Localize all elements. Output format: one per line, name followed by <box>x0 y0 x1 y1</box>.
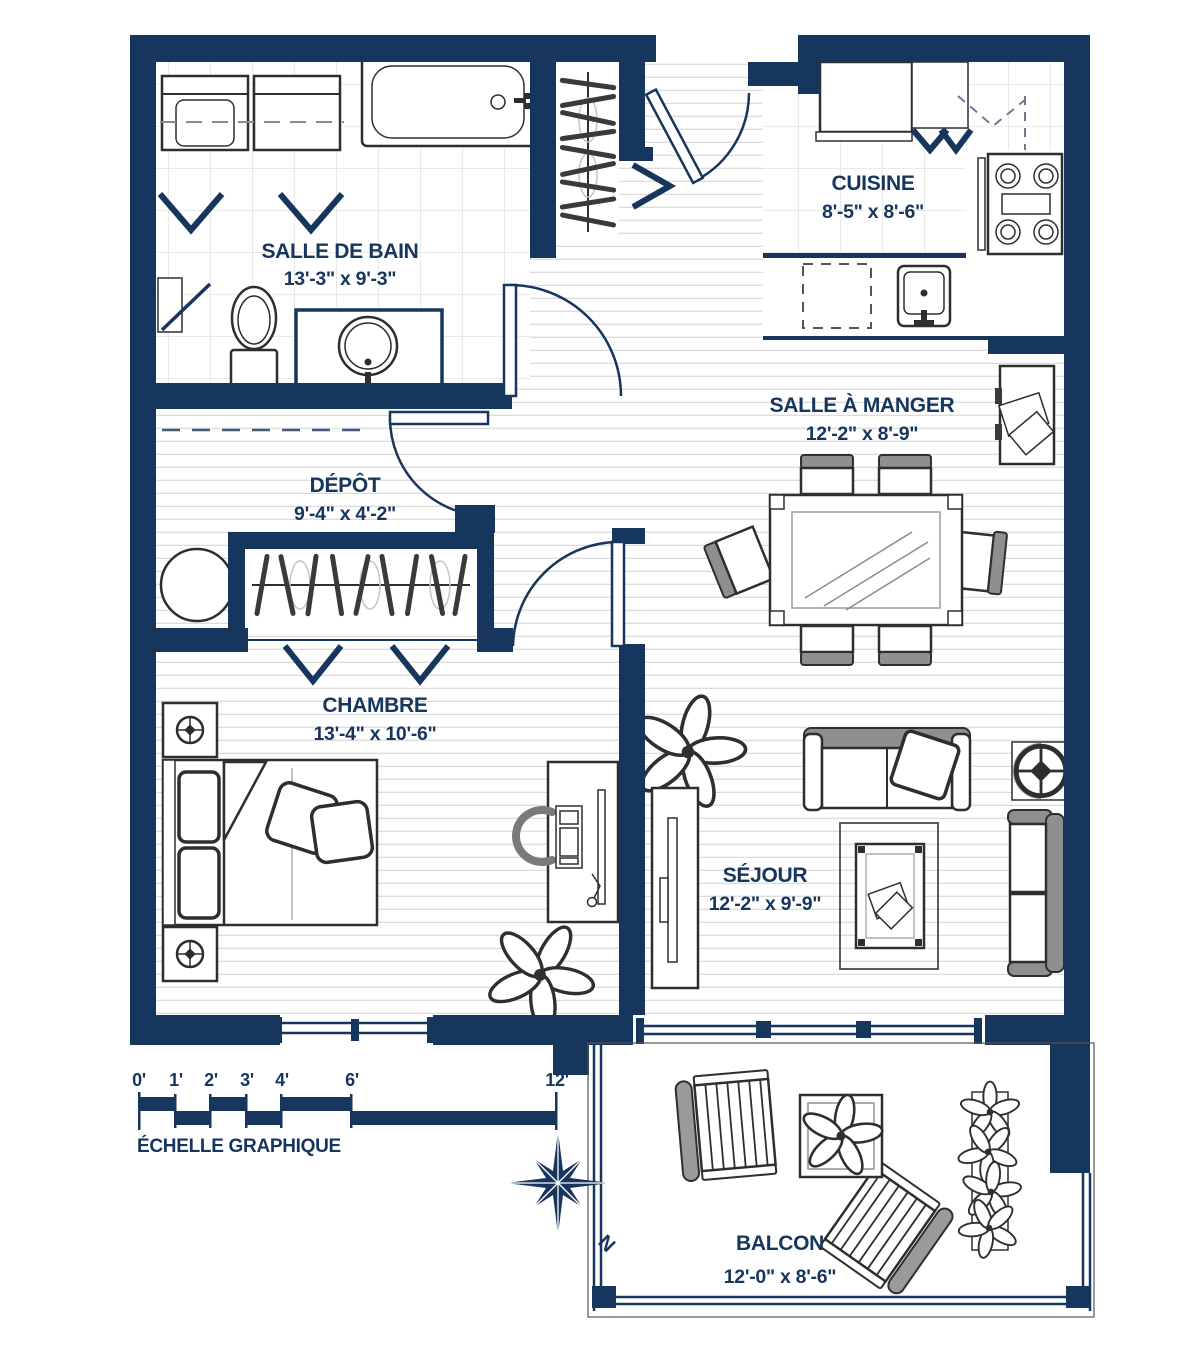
label-chambre: CHAMBRE <box>322 694 428 717</box>
floor-plan-page: 0' 1' 2' 3' 4' 6' 12' ÉCHELLE GRAPHIQUE … <box>0 0 1200 1350</box>
nightstand-top <box>163 703 217 757</box>
label-salle-a-manger: SALLE À MANGER <box>770 394 955 417</box>
scale-tick-4: 4' <box>275 1070 289 1090</box>
dims-chambre: 13'-4" x 10'-6" <box>313 723 436 745</box>
side-table-lamp <box>1012 742 1070 800</box>
scale-bar: 0' 1' 2' 3' 4' 6' 12' ÉCHELLE GRAPHIQUE <box>132 1070 569 1157</box>
pantry <box>912 62 971 150</box>
nightstand-bottom <box>163 927 217 981</box>
label-balcon: BALCON <box>736 1232 824 1255</box>
label-depot: DÉPÔT <box>310 473 381 497</box>
bed <box>163 760 377 925</box>
scale-tick-2: 2' <box>204 1070 218 1090</box>
dims-salle-de-bain: 13'-3" x 9'-3" <box>284 268 396 290</box>
bedroom-window <box>274 1017 435 1043</box>
label-cuisine: CUISINE <box>831 172 914 195</box>
kitchen-sink <box>898 266 950 326</box>
bathtub <box>362 58 538 146</box>
patio-door <box>636 1018 982 1044</box>
stove <box>966 150 1064 262</box>
vanity-sink <box>296 310 442 390</box>
sofa <box>804 728 970 810</box>
dryer <box>254 76 340 150</box>
floor-plan-svg: 0' 1' 2' 3' 4' 6' 12' ÉCHELLE GRAPHIQUE … <box>0 0 1200 1350</box>
scale-tick-5: 6' <box>345 1070 359 1090</box>
scale-tick-1: 1' <box>169 1070 183 1090</box>
loveseat <box>1008 810 1064 976</box>
scale-caption: ÉCHELLE GRAPHIQUE <box>137 1135 341 1157</box>
scale-tick-6: 12' <box>545 1070 568 1090</box>
scale-tick-3: 3' <box>240 1070 254 1090</box>
dims-depot: 9'-4" x 4'-2" <box>294 503 396 525</box>
dining-table <box>770 495 962 625</box>
console-desk <box>995 366 1054 464</box>
dims-salle-a-manger: 12'-2" x 8'-9" <box>806 423 918 445</box>
dims-cuisine: 8'-5" x 8'-6" <box>822 201 924 223</box>
fridge <box>816 62 912 141</box>
balcony-floor <box>588 1045 1092 1317</box>
label-sejour: SÉJOUR <box>723 864 808 887</box>
washer <box>162 76 248 150</box>
scale-tick-0: 0' <box>132 1070 146 1090</box>
lounge-chair <box>675 1070 777 1182</box>
toilet <box>231 287 277 386</box>
water-heater <box>161 549 233 621</box>
balcony-table <box>792 1088 889 1182</box>
label-salle-de-bain: SALLE DE BAIN <box>261 240 418 263</box>
dims-sejour: 12'-2" x 9'-9" <box>709 893 821 915</box>
dims-balcon: 12'-0" x 8'-6" <box>724 1266 836 1288</box>
tv-unit <box>652 788 698 988</box>
